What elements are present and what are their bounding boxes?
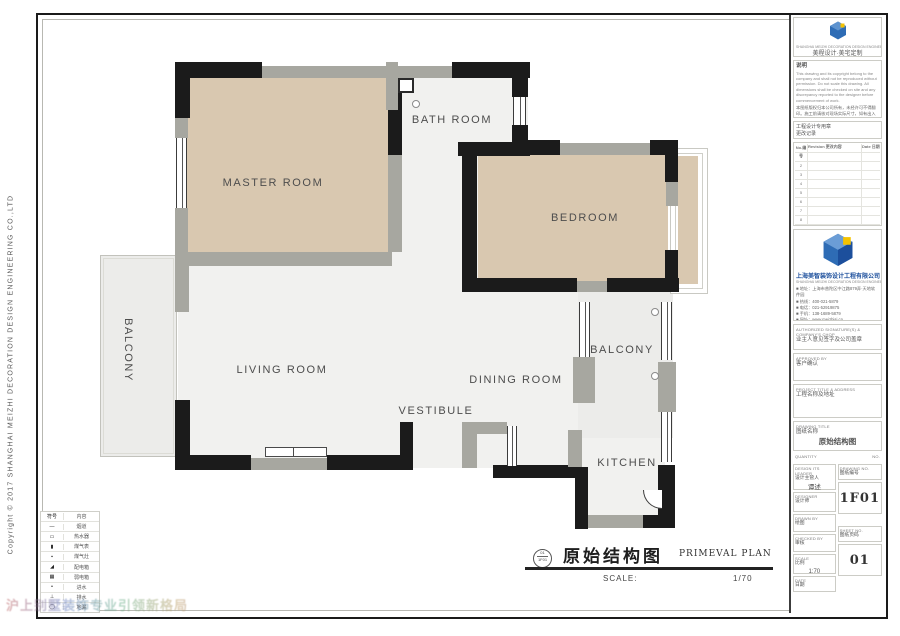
notes-text-cn: 本图纸版权归本公司所有，未经许可不得翻印。施工前请核对现场实际尺寸，如有出入请及… [796, 105, 879, 118]
notes-title: 说明 [796, 63, 879, 71]
stamp-section: 工程设计专用章 更改记录 [793, 121, 882, 139]
revision-no: 6 [795, 198, 808, 206]
legend-row: —烟道 [41, 522, 99, 532]
wall-segment [493, 465, 575, 478]
revision-no: 5 [795, 189, 808, 197]
revision-content-cell [808, 198, 862, 206]
authorized-label-cn: 业主人意见签字及公司盖章 [796, 337, 879, 345]
revision-date-cell [862, 207, 880, 215]
legend-row: ▪煤气灶 [41, 552, 99, 562]
revision-row: 4 [795, 180, 880, 189]
watermark-text: 沪上别墅装饰专业引领新格局 [6, 595, 236, 614]
revision-no: 3 [795, 171, 808, 179]
scale-label-cn: 比例 [795, 561, 834, 568]
legend-symbol: ◢ [41, 564, 64, 570]
company-logo-icon [828, 20, 848, 40]
design-leader-label-cn: 设计主管人 [795, 476, 834, 483]
drawing-no-value: 1F01 [840, 491, 880, 506]
room-label-living: LIVING ROOM [237, 364, 328, 376]
scale-value: 1/70 [733, 574, 753, 583]
legend-label: 煤气灶 [64, 553, 99, 560]
wall-segment [665, 152, 678, 182]
design-leader-label-en: DESIGN ITS LEADER [795, 466, 834, 476]
revision-row: 5 [795, 189, 880, 198]
checked-label-cn: 审核 [795, 541, 834, 548]
wall-segment [575, 467, 588, 529]
floor-plan: MASTER ROOM BATH ROOM BEDROOM BALCONY LI… [95, 40, 765, 540]
wall-infill [251, 458, 327, 470]
date-field: DATE 日期 [793, 576, 836, 592]
wall-segment [462, 156, 477, 292]
revision-row: 6 [795, 198, 880, 207]
room-label-master: MASTER ROOM [223, 177, 324, 189]
signature-right-column: DRAWING NO. 图纸编号 1F01 SHEET NO. 图纸页码 01 [838, 464, 882, 594]
legend-label: 进水 [64, 584, 99, 591]
window [176, 138, 187, 208]
company-name-cn: 上海美智装饰设计工程有限公司 [796, 271, 879, 280]
duct-shaft [398, 78, 414, 93]
drawn-label-cn: 绘图 [795, 521, 834, 528]
revision-date-cell [862, 189, 880, 197]
window [579, 302, 590, 357]
revision-title: 更改记录 [796, 131, 879, 138]
revision-row: 7 [795, 207, 880, 216]
revision-table: No.编号 Revision 更改内容 Date 日期 1 2 3 4 5 6 … [793, 142, 882, 226]
designer-field: DESIGNER 设计师 [793, 492, 836, 512]
fixture-marker [651, 372, 659, 380]
fixture-marker [412, 100, 420, 108]
wall-infill [588, 515, 643, 528]
wall-segment [528, 140, 560, 155]
wall-segment [175, 400, 190, 455]
revision-no: 7 [795, 207, 808, 215]
logo-section: SHANGHAI MEIZHI DECORATION DESIGN ENGINE… [793, 17, 882, 57]
door-frame [507, 426, 517, 466]
revision-no: 8 [795, 216, 808, 224]
legend-symbol: ▪ [41, 554, 64, 560]
quantity-label: QUANTITY [795, 454, 817, 464]
revision-row: 8 [795, 216, 880, 225]
revision-date-cell [862, 162, 880, 170]
tagline: 美程设计·美宅定制 [796, 50, 879, 57]
revision-date-cell [862, 216, 880, 224]
no-label: NO. [872, 454, 880, 464]
quantity-row: QUANTITY NO. [793, 454, 882, 464]
room-label-balcony-left: BALCONY [122, 318, 134, 382]
master-room-floor [180, 78, 392, 252]
sheet-no-label-field: SHEET NO. 图纸页码 [838, 526, 882, 542]
legend-label: 弱电箱 [64, 574, 99, 581]
checked-by-field: CHECKED BY 审核 [793, 534, 836, 552]
wall-segment [458, 142, 530, 156]
legend-label: 热水器 [64, 533, 99, 540]
approved-label-cn: 客户确认 [796, 361, 879, 369]
fixture-marker [651, 308, 659, 316]
revision-date-cell [862, 198, 880, 206]
wall-segment [175, 78, 190, 118]
revision-content-cell [808, 207, 862, 215]
detail-ref-sheet: 1F01 [538, 557, 547, 562]
notes-text-en: This drawing and its copyright belong to… [796, 71, 879, 103]
revision-date-cell [862, 180, 880, 188]
window [661, 302, 672, 360]
legend-row: •进水 [41, 583, 99, 593]
detail-ref-number: 01 [540, 550, 544, 555]
legend-header-symbol: 符号 [41, 513, 64, 520]
wall-infill [175, 208, 188, 252]
legend-row: ▮煤气表 [41, 542, 99, 552]
drawing-title-value: 原始结构图 [796, 437, 879, 448]
revision-date-cell [862, 153, 880, 161]
wall-infill [388, 155, 402, 252]
wall-infill [666, 182, 678, 206]
design-leader-value: 谭述 [795, 483, 834, 492]
legend-header: 符号 内容 [41, 512, 99, 522]
drawing-no-label-field: DRAWING NO. 图纸编号 [838, 464, 882, 480]
room-label-kitchen: KITCHEN [597, 457, 656, 469]
room-label-balcony-right: BALCONY [590, 344, 654, 356]
room-label-dining: DINING ROOM [469, 374, 562, 386]
wall-infill [577, 281, 607, 292]
revision-no: 4 [795, 180, 808, 188]
drawn-by-field: DRAWN BY 绘图 [793, 514, 836, 532]
wall-infill [386, 62, 398, 110]
design-leader-field: DESIGN ITS LEADER 设计主管人 谭述 [793, 464, 836, 490]
wall-infill [573, 357, 595, 403]
window [661, 412, 672, 462]
signature-grid: DESIGN ITS LEADER 设计主管人 谭述 DESIGNER 设计师 … [793, 464, 882, 594]
room-label-vestibule: VESTIBULE [399, 405, 474, 417]
project-label-cn: 工程名称及地址 [796, 392, 879, 400]
wall-infill [175, 266, 189, 312]
wall-infill [175, 118, 188, 138]
wall-infill [560, 143, 650, 155]
wall-infill [262, 66, 392, 78]
sliding-door [265, 447, 327, 457]
date-label-cn: 日期 [795, 583, 834, 590]
detail-reference-bubble: 01 1F01 [533, 549, 552, 568]
wall-segment [512, 62, 528, 97]
revision-header-no: No.编号 [795, 144, 808, 152]
sheet-no-value: 01 [850, 553, 870, 568]
wall-segment [400, 422, 413, 470]
legend-row: ▦弱电箱 [41, 573, 99, 583]
room-label-bedroom: BEDROOM [551, 212, 619, 224]
revision-header-revision: Revision 更改内容 [808, 144, 862, 152]
scale-label: SCALE: [603, 574, 637, 583]
company-logo-large [821, 232, 855, 266]
title-underline [525, 567, 773, 570]
company-name-en: SHANGHAI MEIZHI DECORATION DESIGN ENGINE… [796, 280, 879, 284]
designer-label-cn: 设计师 [795, 499, 834, 506]
revision-content-cell [808, 189, 862, 197]
revision-content-cell [808, 171, 862, 179]
legend-row: ▭热水器 [41, 532, 99, 542]
wall-segment [607, 278, 679, 292]
drawing-title-en: PRIMEVAL PLAN [679, 549, 772, 559]
scale-field: SCALE 比例 1:70 [793, 554, 836, 574]
drawing-no-label-cn: 图纸编号 [840, 471, 880, 478]
legend-symbol: — [41, 524, 64, 530]
revision-no: 1 [795, 153, 808, 161]
revision-date-cell [862, 171, 880, 179]
project-section: PROJECT TITLE & ADDRESS 工程名称及地址 [793, 384, 882, 418]
authorized-label-en: AUTHORIZED SIGNATURE(S) & COMPANY'S CHOP [796, 327, 879, 337]
wall-infill [175, 252, 392, 266]
drawing-title-label-cn: 图纸名称 [796, 429, 879, 437]
signature-left-column: DESIGN ITS LEADER 设计主管人 谭述 DESIGNER 设计师 … [793, 464, 836, 594]
company-section: 上海美智装饰设计工程有限公司 SHANGHAI MEIZHI DECORATIO… [793, 229, 882, 321]
wall-segment [175, 455, 251, 470]
balcony-left-floor [100, 255, 177, 457]
bay-window-floor [678, 156, 698, 284]
revision-content-cell [808, 162, 862, 170]
company-name-small: SHANGHAI MEIZHI DECORATION DESIGN ENGINE… [796, 45, 879, 49]
revision-row: 2 [795, 162, 880, 171]
window [513, 97, 526, 125]
wall-segment [327, 455, 400, 470]
revision-row: 1 [795, 153, 880, 162]
legend-label: 煤气表 [64, 543, 99, 550]
revision-content-cell [808, 153, 862, 161]
legend-symbol: • [41, 584, 64, 590]
company-contact-lines: ■ 地址：上海市普陀区中江路879弄·天地软件园 ■ 热线：400-021-58… [796, 286, 879, 321]
drawing-title-bar: 01 1F01 原始结构图 PRIMEVAL PLAN SCALE: 1/70 [525, 542, 773, 590]
legend-symbol: ▮ [41, 544, 64, 550]
wall-segment [462, 278, 577, 292]
legend-header-content: 内容 [64, 513, 99, 520]
revision-no: 2 [795, 162, 808, 170]
revision-content-cell [808, 180, 862, 188]
approved-section: APPROVED BY 客户确认 [793, 353, 882, 381]
drawing-title-section: DRAWING TITLE 图纸名称 原始结构图 [793, 421, 882, 451]
stamp-label: 工程设计专用章 [796, 124, 879, 131]
legend-symbol: ▭ [41, 534, 64, 540]
legend-row: ◢配电箱 [41, 562, 99, 572]
legend-symbol: ▦ [41, 574, 64, 580]
wall-infill [462, 422, 507, 434]
wall-infill [398, 66, 452, 78]
sheet-no-label-cn: 图纸页码 [840, 533, 880, 540]
revision-row: 3 [795, 171, 880, 180]
notes-section: 说明 This drawing and its copyright belong… [793, 60, 882, 118]
drawing-title-cn: 原始结构图 [563, 542, 663, 567]
legend-label: 配电箱 [64, 564, 99, 571]
revision-header-row: No.编号 Revision 更改内容 Date 日期 [795, 144, 880, 153]
legend-label: 烟道 [64, 523, 99, 530]
sheet-no-value-field: 01 [838, 544, 882, 576]
room-label-bath: BATH ROOM [412, 114, 492, 126]
authorized-section: AUTHORIZED SIGNATURE(S) & COMPANY'S CHOP… [793, 324, 882, 350]
wall-infill [568, 430, 582, 467]
copyright-vertical-text: Copyright © 2017 SHANGHAI MEIZHI DECORAT… [8, 140, 21, 610]
revision-content-cell [808, 216, 862, 224]
revision-header-date: Date 日期 [862, 144, 880, 152]
wall-infill [658, 362, 676, 412]
drawing-no-value-field: 1F01 [838, 482, 882, 514]
wall-segment [175, 62, 262, 78]
title-block: SHANGHAI MEIZHI DECORATION DESIGN ENGINE… [789, 15, 884, 613]
